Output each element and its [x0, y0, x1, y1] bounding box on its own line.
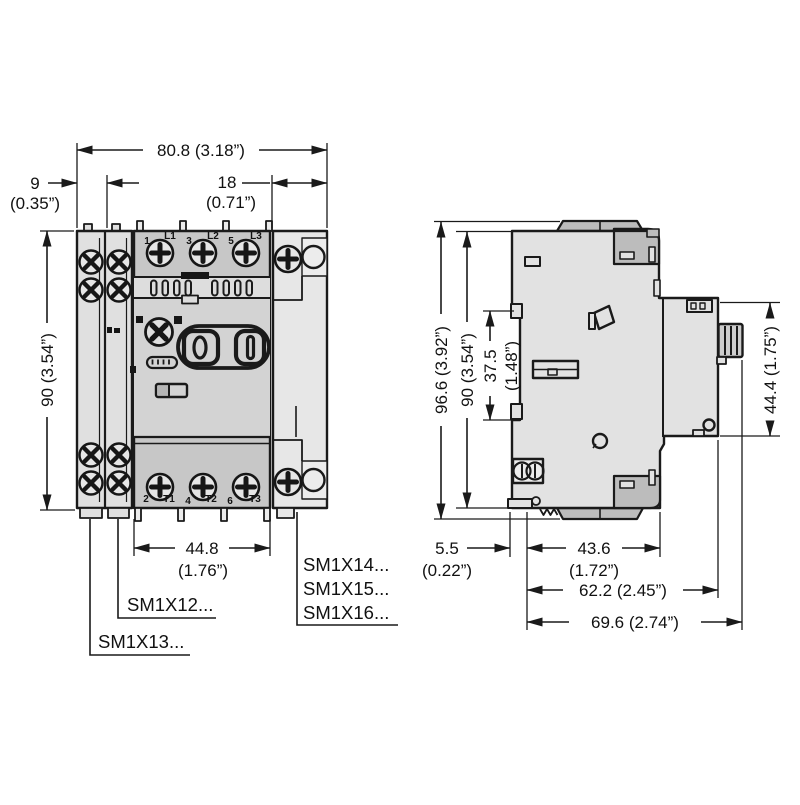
dim-terminal-span-in: (1.76”) — [178, 561, 228, 580]
dim-body-depth-in: (1.72”) — [569, 561, 619, 580]
foot-tab — [108, 508, 129, 518]
module-screw-icon — [275, 469, 301, 495]
terminal-label: T2 — [205, 494, 217, 505]
terminal-screw-icon — [233, 240, 259, 266]
dim-right-width-in: (0.71”) — [206, 193, 256, 212]
aux-screw-icon — [108, 279, 131, 302]
bottom-pin — [264, 508, 270, 521]
aux-screw-icon — [80, 444, 103, 467]
terminal-label: L3 — [250, 231, 262, 242]
model-label-sm1x14: SM1X14... — [303, 554, 389, 575]
model-label-sm1x15: SM1X15... — [303, 578, 389, 599]
terminal-label: 1 — [144, 236, 150, 247]
bottom-pin — [221, 508, 227, 521]
side-mount-module — [273, 231, 327, 508]
model-label-sm1x13: SM1X13... — [98, 631, 184, 652]
bottom-pin — [135, 508, 141, 521]
terminal-screw-icon — [190, 240, 216, 266]
dim-din-offset-in: (1.48”) — [502, 341, 521, 391]
aux-screw-icon — [108, 472, 131, 495]
terminal-label: T1 — [163, 494, 175, 505]
padlock-hole — [704, 420, 715, 431]
dim-body-depth: 43.6 — [577, 539, 610, 558]
bottom-pin — [178, 508, 184, 521]
terminal-label: 4 — [185, 496, 191, 507]
breaker-main-body: 1 L1 3 L2 5 L3 — [130, 221, 272, 521]
dim-din-offset: 37.5 — [481, 349, 500, 382]
dim-depth-to-face: 62.2 (2.45”) — [579, 581, 667, 600]
dim-back-depth-in: (0.22”) — [422, 561, 472, 580]
aux-contact-modules — [77, 224, 132, 508]
aux-screw-icon — [80, 251, 103, 274]
top-pin — [266, 221, 272, 231]
module-screw-icon — [275, 246, 301, 272]
terminal-label: T3 — [249, 494, 261, 505]
din-clip-screw — [513, 459, 544, 483]
aux-screw-icon — [80, 472, 103, 495]
dim-front-height: 44.4 (1.75”) — [761, 326, 780, 414]
dim-height-overall: 96.6 (3.92”) — [432, 326, 451, 414]
dim-height-body: 90 (3.54”) — [458, 333, 477, 407]
drawing-page: 1 L1 3 L2 5 L3 — [0, 0, 800, 800]
current-adjustment-dial — [146, 319, 173, 346]
dim-aux-width-in: (0.35”) — [10, 194, 60, 213]
foot-tab — [277, 508, 294, 518]
dimensional-drawing: 1 L1 3 L2 5 L3 — [0, 0, 800, 800]
aux-screw-icon — [108, 251, 131, 274]
foot-tab — [80, 508, 102, 518]
terminal-screw-icon — [147, 240, 173, 266]
terminal-label: 2 — [143, 494, 149, 505]
terminal-label: L1 — [164, 231, 176, 242]
dim-depth-overall: 69.6 (2.74”) — [591, 613, 679, 632]
dim-overall-width: 80.8 (3.18”) — [157, 141, 245, 160]
terminal-label: 3 — [186, 236, 192, 247]
clip-foot — [508, 499, 532, 508]
dim-back-depth: 5.5 — [435, 539, 459, 558]
terminal-label: 6 — [227, 496, 233, 507]
model-label-sm1x16: SM1X16... — [303, 602, 389, 623]
aux-screw-icon — [108, 444, 131, 467]
dim-terminal-span: 44.8 — [185, 539, 218, 558]
terminal-label: 5 — [228, 236, 234, 247]
dim-aux-width: 9 — [30, 174, 39, 193]
aux-screw-icon — [80, 279, 103, 302]
rail-hook — [511, 404, 522, 419]
model-label-sm1x12: SM1X12... — [127, 594, 213, 615]
din-clip-slider — [533, 361, 578, 378]
terminal-label: L2 — [207, 231, 219, 242]
top-pin — [137, 221, 143, 231]
top-pin — [180, 221, 186, 231]
dim-height: 90 (3.54”) — [38, 333, 57, 407]
top-pin — [223, 221, 229, 231]
rotary-knob — [717, 324, 743, 364]
dim-right-width: 18 — [218, 173, 237, 192]
